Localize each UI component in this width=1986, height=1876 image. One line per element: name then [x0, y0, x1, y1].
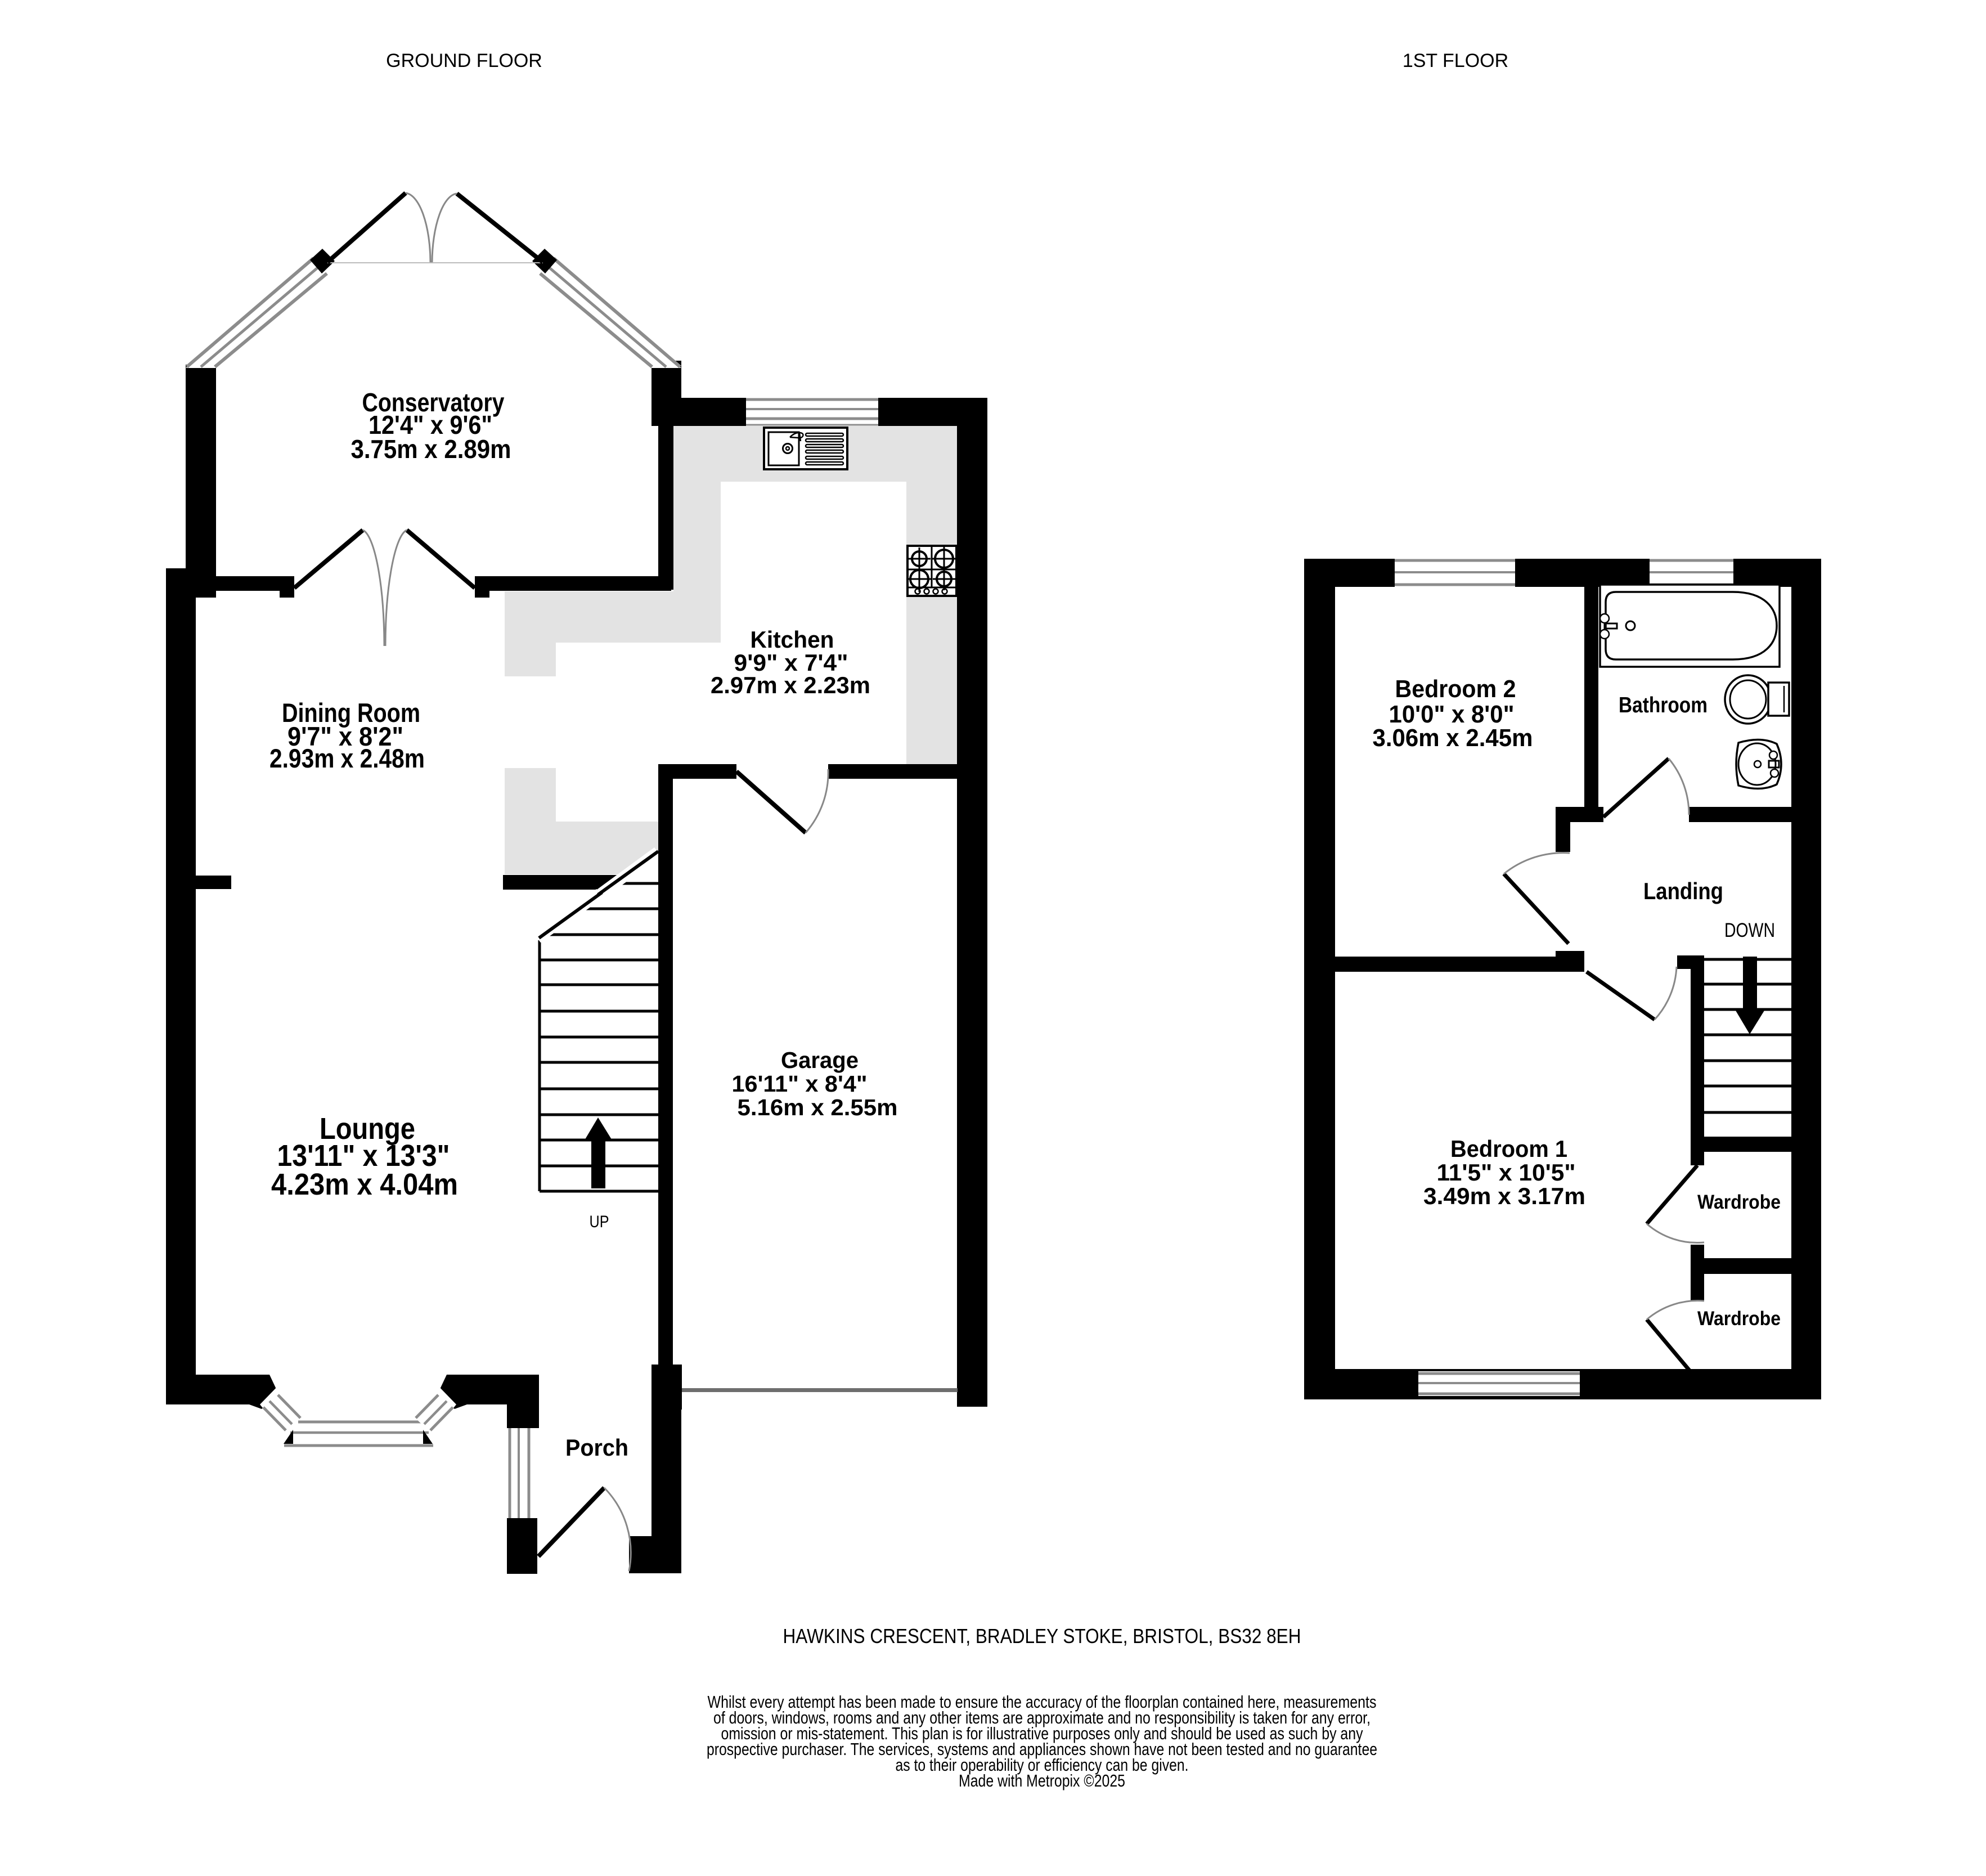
svg-text:Kitchen: Kitchen [751, 626, 834, 653]
svg-text:Wardrobe: Wardrobe [1697, 1191, 1781, 1213]
svg-text:4.23m x 4.04m: 4.23m x 4.04m [271, 1168, 458, 1201]
svg-text:3.75m x 2.89m: 3.75m x 2.89m [351, 434, 511, 464]
svg-text:3.06m x 2.45m: 3.06m x 2.45m [1373, 724, 1533, 752]
svg-text:Porch: Porch [565, 1434, 628, 1461]
svg-text:Wardrobe: Wardrobe [1697, 1308, 1781, 1330]
svg-text:Garage: Garage [781, 1047, 859, 1073]
svg-text:HAWKINS CRESCENT, BRADLEY STOK: HAWKINS CRESCENT, BRADLEY STOKE, BRISTOL… [783, 1624, 1301, 1648]
svg-text:DOWN: DOWN [1724, 919, 1775, 941]
svg-text:5.16m x 2.55m: 5.16m x 2.55m [738, 1094, 898, 1120]
svg-text:Landing: Landing [1643, 878, 1723, 904]
svg-text:Bathroom: Bathroom [1619, 693, 1708, 717]
svg-text:1ST FLOOR: 1ST FLOOR [1403, 50, 1508, 71]
svg-text:2.97m x 2.23m: 2.97m x 2.23m [711, 672, 870, 698]
svg-text:Bedroom 1: Bedroom 1 [1450, 1136, 1567, 1162]
svg-text:2.93m x 2.48m: 2.93m x 2.48m [269, 743, 425, 773]
svg-text:UP: UP [590, 1213, 609, 1231]
svg-text:3.49m x 3.17m: 3.49m x 3.17m [1423, 1183, 1585, 1209]
svg-text:16'11" x 8'4": 16'11" x 8'4" [732, 1071, 868, 1097]
svg-text:GROUND FLOOR: GROUND FLOOR [386, 50, 542, 71]
svg-text:Bedroom 2: Bedroom 2 [1395, 675, 1516, 703]
svg-text:11'5" x 10'5": 11'5" x 10'5" [1437, 1159, 1576, 1186]
svg-text:Made with Metropix ©2025: Made with Metropix ©2025 [959, 1771, 1125, 1790]
